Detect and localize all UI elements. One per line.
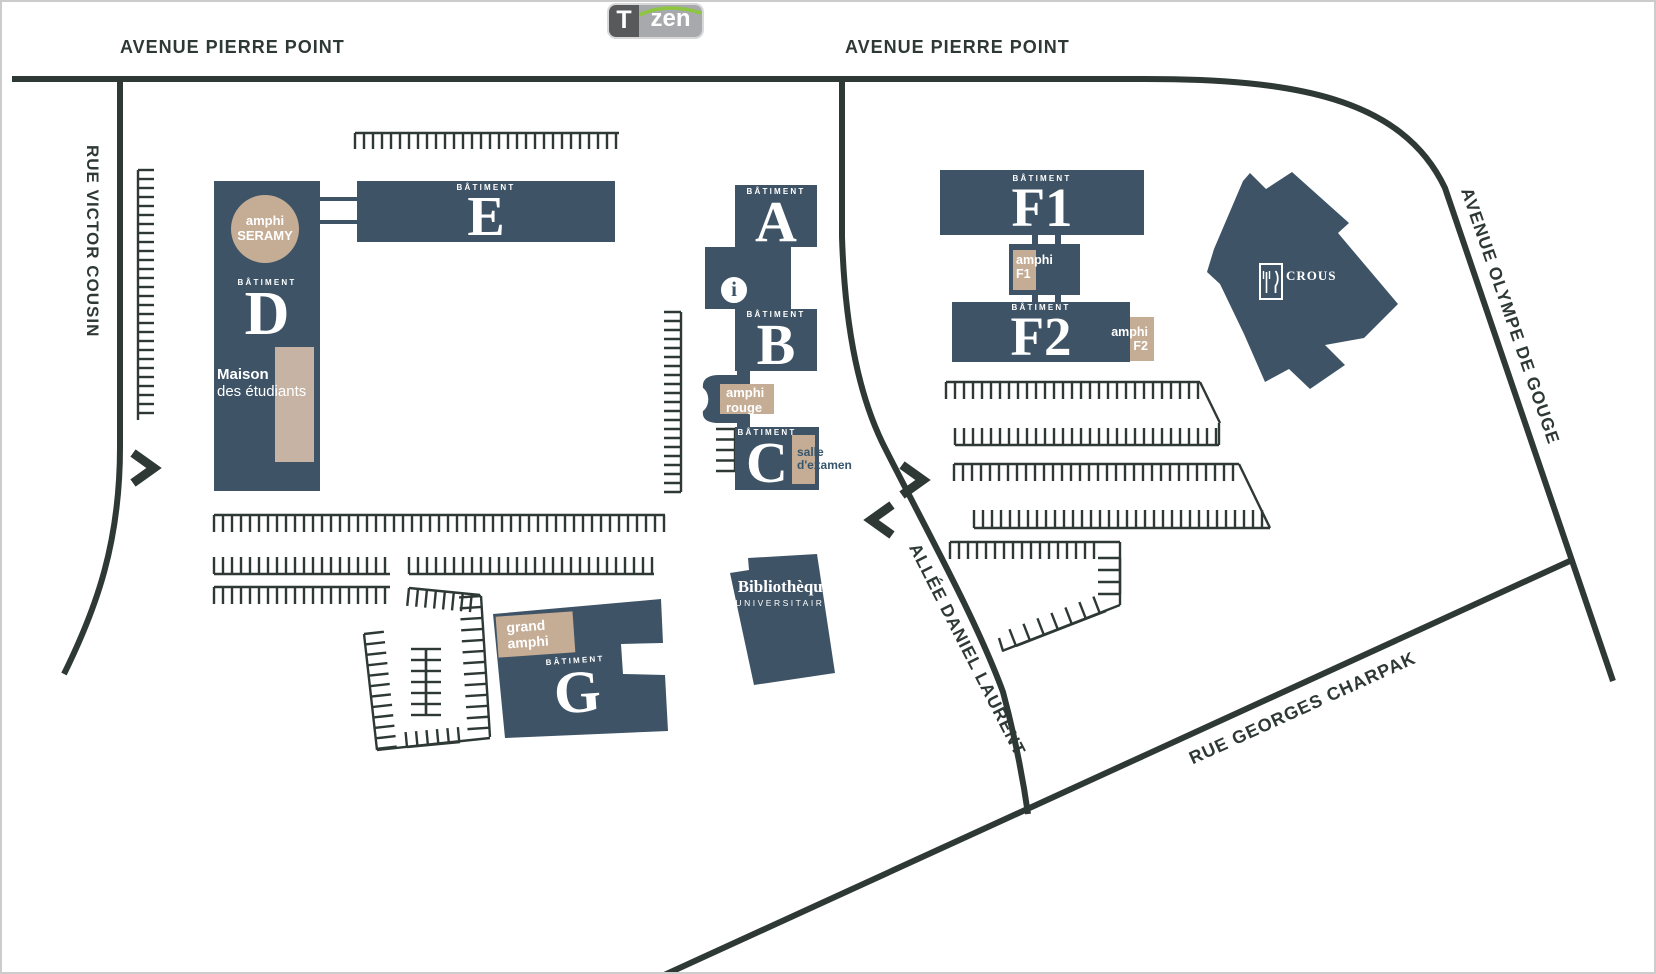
parking-line xyxy=(465,684,487,685)
info-icon: i xyxy=(718,274,750,306)
parking-line xyxy=(376,736,396,738)
street-rue-victor-cousin: RUE VICTOR COUSIN xyxy=(82,145,102,337)
parking-line xyxy=(447,728,448,743)
tzen-logo-t: T xyxy=(609,5,639,37)
parking-line xyxy=(1002,605,1120,651)
building-b-label: BÂTIMENT B xyxy=(735,311,817,371)
building-e-label: BÂTIMENT E xyxy=(357,184,615,242)
street-avenue-pierre-point-left: AVENUE PIERRE POINT xyxy=(120,37,345,58)
parking-line xyxy=(371,694,391,696)
parking-line xyxy=(369,674,389,676)
building-info-block xyxy=(705,247,791,309)
amphi-rouge-label: amphi rouge xyxy=(726,386,764,415)
parking-line xyxy=(434,591,436,609)
building-c-label: BÂTIMENT C xyxy=(735,429,799,489)
parking-line xyxy=(365,642,385,644)
parking-line xyxy=(465,695,487,696)
parking-line xyxy=(364,632,384,634)
parking-line xyxy=(1023,624,1030,641)
parking-line xyxy=(467,728,489,729)
building-a-label: BÂTIMENT A xyxy=(735,188,817,248)
amphi-f2-label: amphi F2 xyxy=(1100,325,1148,353)
tzen-logo-zen: zen xyxy=(639,5,702,37)
parking-line xyxy=(377,738,490,750)
parking-line xyxy=(464,673,486,674)
parking-line xyxy=(1051,613,1058,630)
building-f1-label: BÂTIMENT F1 xyxy=(940,175,1144,233)
parking-line xyxy=(999,638,1003,651)
parking-line xyxy=(1037,618,1044,635)
one-way-arrow-icon xyxy=(871,505,892,535)
parking-line xyxy=(460,607,482,608)
one-way-arrow-icon xyxy=(902,465,923,495)
parking-line xyxy=(452,592,454,610)
parking-line xyxy=(463,662,485,663)
campus-map: T zen AVENUE PIERRE POINT AVENUE PIERRE … xyxy=(0,0,1656,974)
street-avenue-pierre-point-right: AVENUE PIERRE POINT xyxy=(845,37,1070,58)
maison-etudiants-label: Maison des étudiants xyxy=(217,367,306,401)
salle-examen-label: salle d'examen xyxy=(797,446,852,473)
parking-line xyxy=(364,634,377,750)
parking-line xyxy=(425,590,427,608)
parking-line xyxy=(406,732,407,747)
parking-line xyxy=(462,640,484,641)
parking-line xyxy=(459,596,481,597)
parking-line xyxy=(458,727,459,742)
parking-line xyxy=(375,726,395,728)
parking-line xyxy=(426,730,427,745)
parking-line xyxy=(463,651,485,652)
parking-line xyxy=(373,715,393,717)
parking-line xyxy=(416,589,418,607)
parking-line xyxy=(1009,629,1016,646)
grand-amphi-label: grand amphi xyxy=(506,618,549,652)
parking-line xyxy=(366,653,386,655)
parking-line xyxy=(1079,602,1086,619)
parking-line xyxy=(407,588,409,606)
library-label: Bibliothèque UNIVERSITAIRE xyxy=(724,578,844,608)
parking-line xyxy=(466,706,488,707)
parking-line xyxy=(370,684,390,686)
parking-line xyxy=(368,663,388,665)
parking-line xyxy=(460,618,482,619)
parking-line xyxy=(443,592,445,610)
parking-line xyxy=(461,629,483,630)
parking-line xyxy=(372,705,392,707)
one-way-arrow-icon xyxy=(133,453,154,483)
amphi-f1-label: amphi F1 xyxy=(1016,253,1053,281)
building-d-label: BÂTIMENT D xyxy=(214,279,320,343)
tzen-green-swoosh-icon xyxy=(639,5,702,37)
building-library-shape xyxy=(730,554,835,685)
building-g-label: BÂTIMENT G xyxy=(520,653,634,723)
tzen-logo: T zen xyxy=(609,5,702,37)
amphi-seramy: amphi SERAMY xyxy=(231,195,299,263)
parking-line xyxy=(1200,382,1220,423)
parking-line xyxy=(1093,597,1100,614)
maison-etudiants-block xyxy=(275,347,314,462)
parking-line xyxy=(467,717,489,718)
parking-line xyxy=(437,729,438,744)
parking-line xyxy=(416,731,417,746)
parking-line xyxy=(1065,607,1072,624)
crous-label: CROUS xyxy=(1286,268,1337,284)
